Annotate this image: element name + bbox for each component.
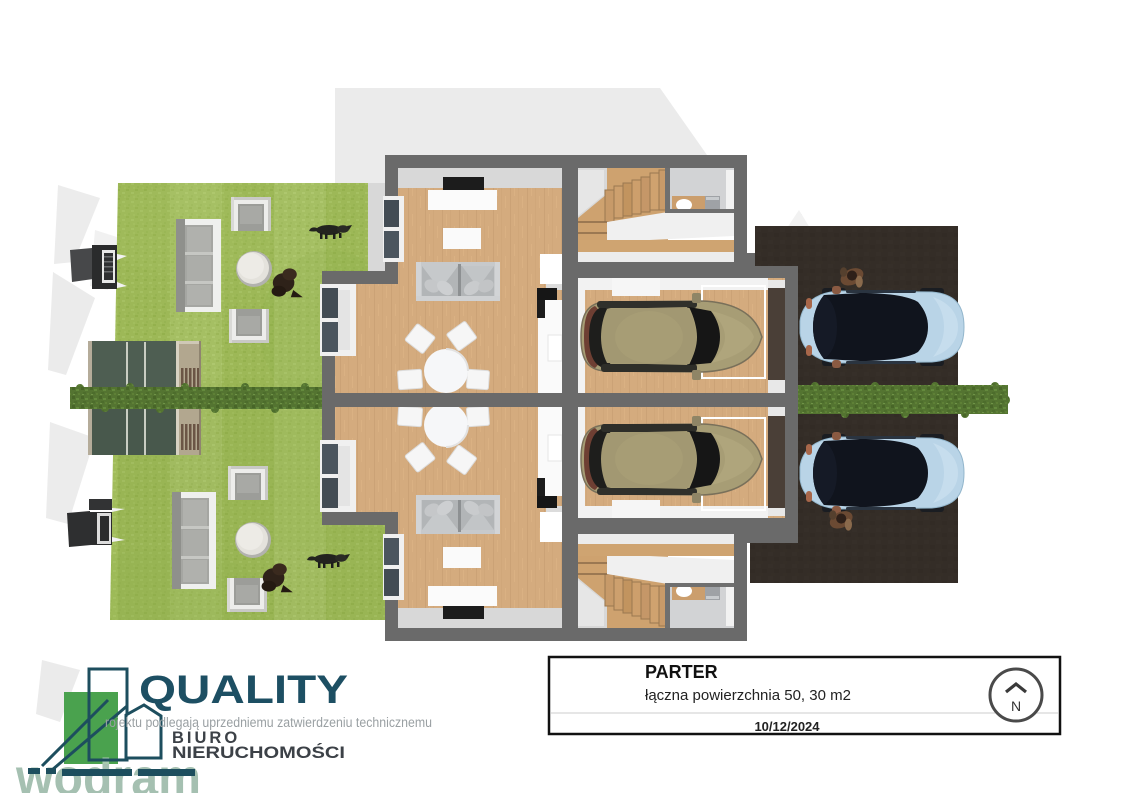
svg-text:rojektu podlegają uprzedniemu: rojektu podlegają uprzedniemu zatwierdze… — [105, 715, 432, 730]
svg-text:N: N — [1011, 698, 1021, 714]
svg-text:PARTER: PARTER — [645, 662, 718, 682]
svg-text:łączna powierzchnia 50, 30 m2: łączna powierzchnia 50, 30 m2 — [645, 687, 851, 704]
svg-text:QUALITY: QUALITY — [139, 668, 348, 712]
svg-text:NIERUCHOMOŚCI: NIERUCHOMOŚCI — [172, 743, 345, 762]
svg-text:10/12/2024: 10/12/2024 — [754, 719, 820, 734]
